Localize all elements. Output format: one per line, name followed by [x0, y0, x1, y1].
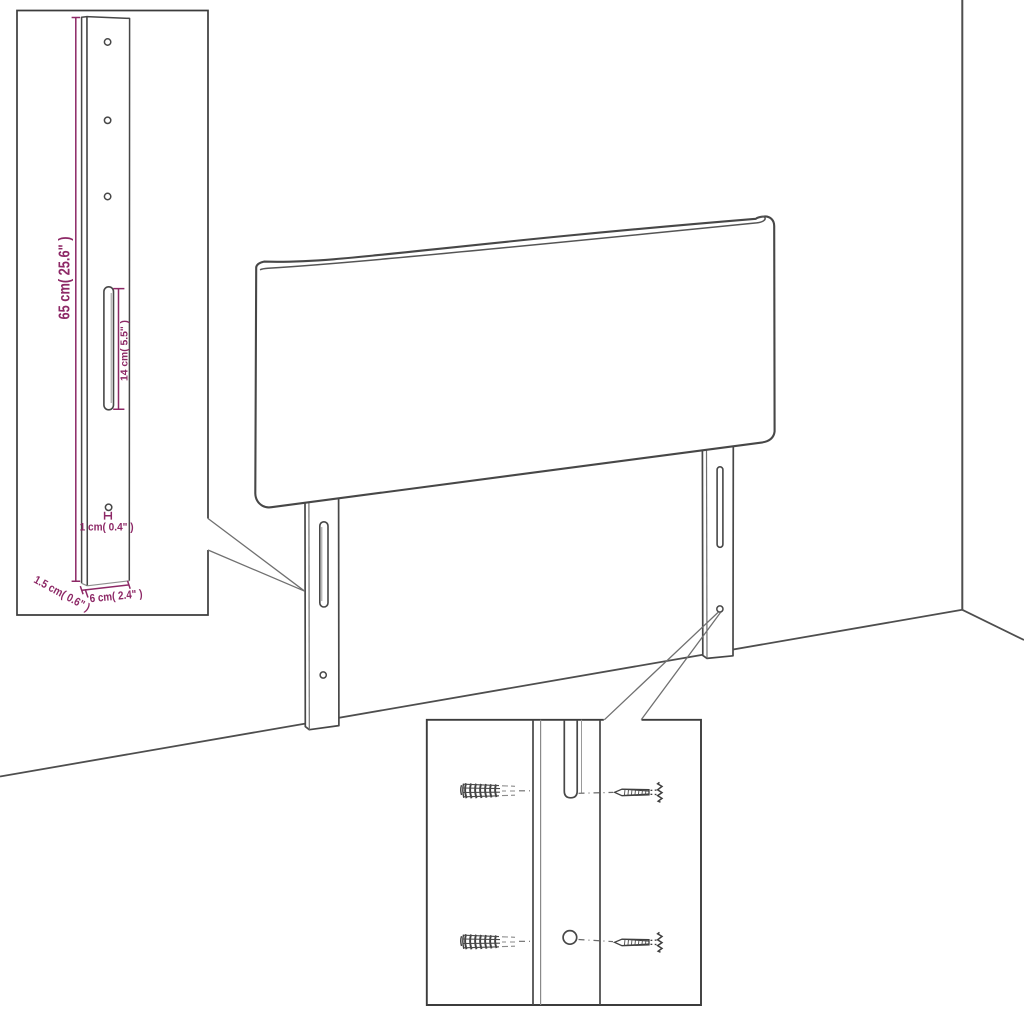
- svg-text:65 cm( 25.6" ): 65 cm( 25.6" ): [57, 237, 74, 320]
- svg-text:14 cm( 5.5" ): 14 cm( 5.5" ): [119, 320, 131, 381]
- svg-text:6 cm( 2.4" ): 6 cm( 2.4" ): [89, 588, 143, 605]
- svg-text:1 cm( 0.4" ): 1 cm( 0.4" ): [80, 522, 134, 534]
